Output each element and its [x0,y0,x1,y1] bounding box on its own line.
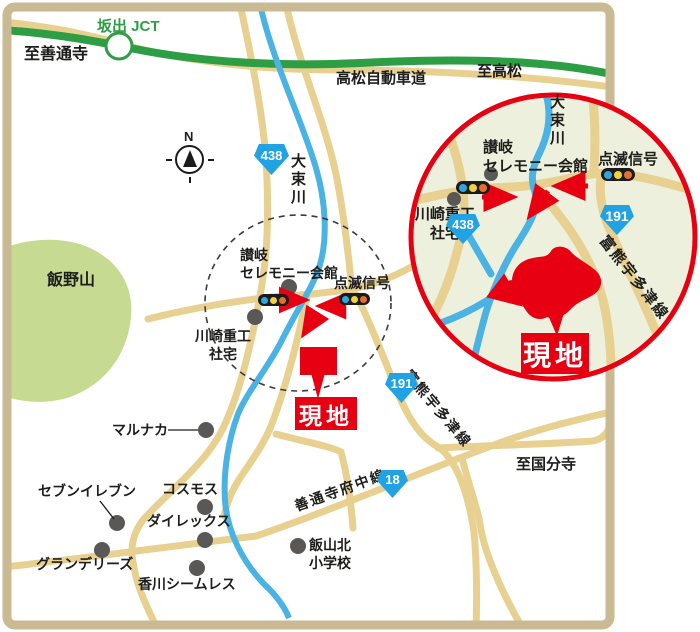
label-seven-eleven: セブンイレブン [38,482,136,500]
inset-label-flashing-signal: 点滅信号 [598,150,658,169]
signal-red-lamp [624,171,632,179]
inset-traffic-signal-icon-east [601,168,635,181]
label-sanuki-line2: セレモニー会館 [240,265,338,281]
label-kawasaki-line2: 社宅 [209,346,237,362]
inset-traffic-signal-icon-west [456,181,490,194]
label-hanzan-kita-school: 飯山北小学校 [309,536,351,572]
label-kagawa-seamless: 香川シームレス [138,575,236,593]
label-marunaka: マルナカ [112,421,168,439]
label-sakaide-jct: 坂出 JCT [97,17,160,36]
signal-yellow-lamp [469,184,477,192]
signal-yellow-lamp [614,171,622,179]
seven-eleven-dot [109,515,125,531]
signal-blue-lamp [342,296,349,303]
north-needle-icon [183,150,197,167]
access-map: 至善通寺 坂出 JCT 高松自動車道 至高松 大束川 飯野山 N 讃岐セレモニー… [0,0,700,632]
signal-blue-lamp [459,184,467,192]
label-kawasaki-line1: 川崎重工 [195,328,251,344]
hanzan-kita-school-dot [290,538,306,554]
signal-red-lamp [479,184,487,192]
kawasaki-housing-dot [247,309,263,325]
inset-kawasaki-housing-dot [447,192,461,206]
label-to-kokubunji: 至国分寺 [516,455,576,474]
label-flashing-signal: 点滅信号 [334,274,390,292]
label-sanuki-ceremony-hall: 讃岐セレモニー会館 [240,246,338,282]
label-hanzan-line2: 小学校 [309,555,351,571]
signal-red-lamp [279,297,286,304]
label-direx: ダイレックス [147,512,231,530]
direx-dot [197,532,213,548]
marunaka-dot [198,422,214,438]
label-takamatsu-expressway: 高松自動車道 [336,69,426,88]
label-daisoku-river: 大束川 [288,153,307,207]
inset-label-sanuki-ceremony-hall: 讃岐セレモニー会館 [483,138,588,176]
site-footprint-main [300,347,337,375]
label-to-zentsuji: 至善通寺 [24,46,88,64]
label-iino-mountain: 飯野山 [47,272,95,290]
signal-yellow-lamp [270,297,277,304]
signal-blue-lamp [604,171,612,179]
signal-blue-lamp [261,297,268,304]
label-grandelys: グランデリーズ [36,555,133,573]
label-north: N [184,128,193,146]
traffic-signal-icon-west [258,294,289,306]
site-label-main: 現地 [295,397,357,430]
inset-label-sanuki-line2: セレモニー会館 [483,158,588,175]
label-cosmos: コスモス [162,480,218,498]
sakaide-jct-circle [106,33,132,59]
signal-yellow-lamp [351,296,358,303]
traffic-signal-icon-east [339,293,370,305]
north-arrow-icon [175,145,204,174]
site-label-inset: 現地 [521,333,589,374]
label-to-takamatsu: 至高松 [477,62,522,81]
label-sanuki-line1: 讃岐 [240,247,268,263]
label-hanzan-line1: 飯山北 [309,537,351,553]
kagawa-seamless-dot [189,560,205,576]
inset-north-road [592,92,595,172]
signal-red-lamp [360,296,367,303]
label-kawasaki-housing: 川崎重工社宅 [194,327,252,363]
inset-label-sanuki-line1: 讃岐 [483,139,513,156]
